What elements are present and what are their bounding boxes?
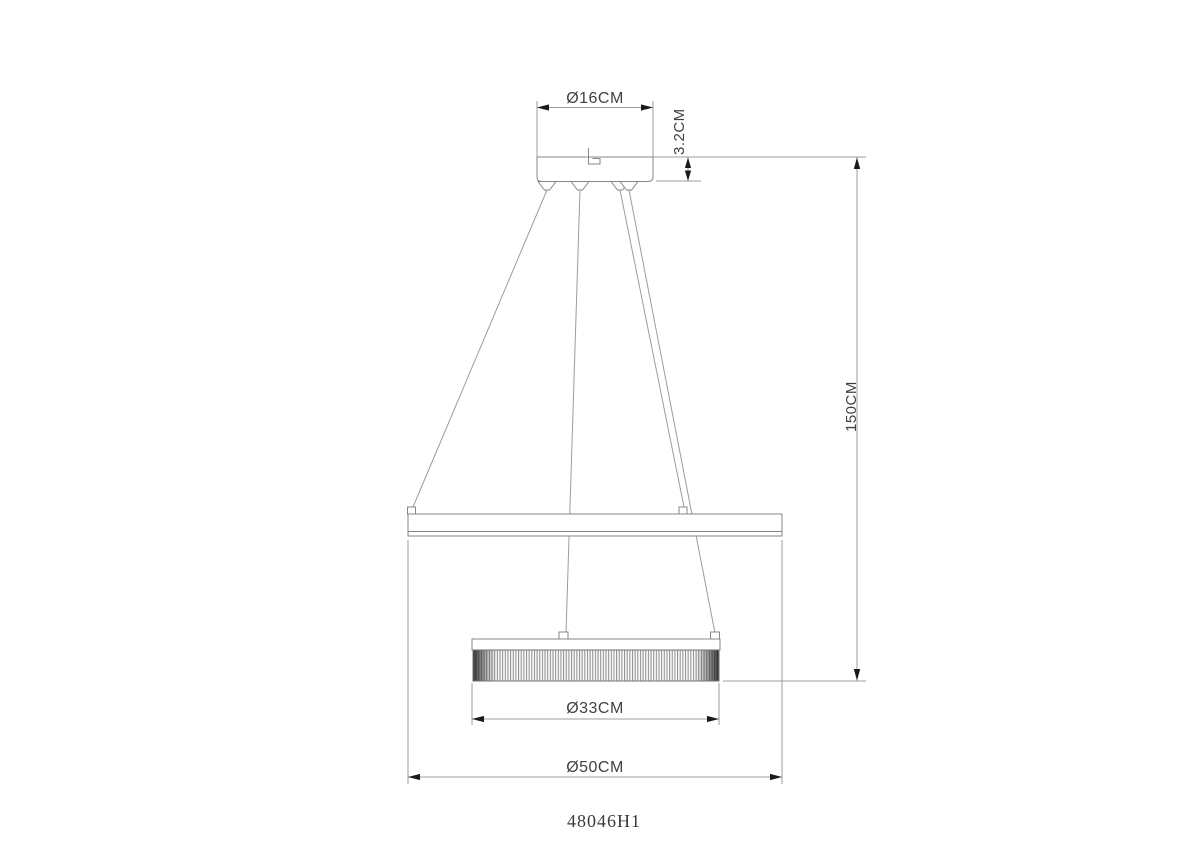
lamp-diffuser-shade-right — [696, 651, 719, 681]
cable-right-outer — [620, 190, 684, 507]
cable-gland-center — [571, 182, 589, 191]
arrow-right-icon — [770, 774, 782, 780]
arrow-right-icon — [707, 716, 719, 722]
dimension-inner-diameter: Ø33CM — [472, 683, 719, 725]
arrow-up-icon — [854, 158, 860, 170]
lamp-ribbed-diffuser — [473, 650, 719, 681]
canopy-height-label: 3.2CM — [671, 108, 688, 155]
inner-diameter-label: Ø33CM — [566, 700, 624, 717]
lamp-top-rim — [472, 639, 720, 650]
ring-cable-tab-right — [679, 507, 687, 515]
cable-center — [566, 190, 580, 633]
ring-cable-tab-left — [408, 507, 416, 515]
suspension-cables — [413, 190, 715, 633]
arrow-up-icon — [685, 158, 691, 169]
arrow-down-icon — [685, 171, 691, 182]
arrow-left-icon — [537, 104, 549, 110]
inner-lamp — [472, 632, 720, 681]
drop-height-label: 150CM — [843, 381, 860, 432]
dimension-drop-height: 150CM — [653, 157, 866, 681]
ceiling-canopy — [537, 148, 653, 190]
cable-left — [413, 190, 547, 507]
ring-band — [408, 514, 782, 536]
drawing-canvas: Ø16CM 3.2CM 150CM Ø33CM Ø50CM — [0, 0, 1200, 848]
lamp-cable-tab-right — [711, 632, 720, 639]
arrow-right-icon — [641, 104, 653, 110]
dimension-canopy-height: 3.2CM — [656, 108, 701, 181]
lamp-diffuser-shade-left — [474, 651, 497, 681]
canopy-body — [537, 157, 653, 182]
cable-gland-left — [538, 182, 556, 191]
canopy-diameter-label: Ø16CM — [566, 90, 624, 107]
arrow-down-icon — [854, 669, 860, 681]
arrow-left-icon — [408, 774, 420, 780]
outer-ring — [408, 507, 783, 536]
arrow-left-icon — [472, 716, 484, 722]
model-number: 48046H1 — [567, 811, 641, 831]
cable-right-inner — [629, 190, 715, 633]
outer-diameter-label: Ø50CM — [566, 759, 624, 776]
lamp-cable-tab-center — [559, 632, 568, 639]
dimension-canopy-diameter: Ø16CM — [537, 90, 653, 157]
